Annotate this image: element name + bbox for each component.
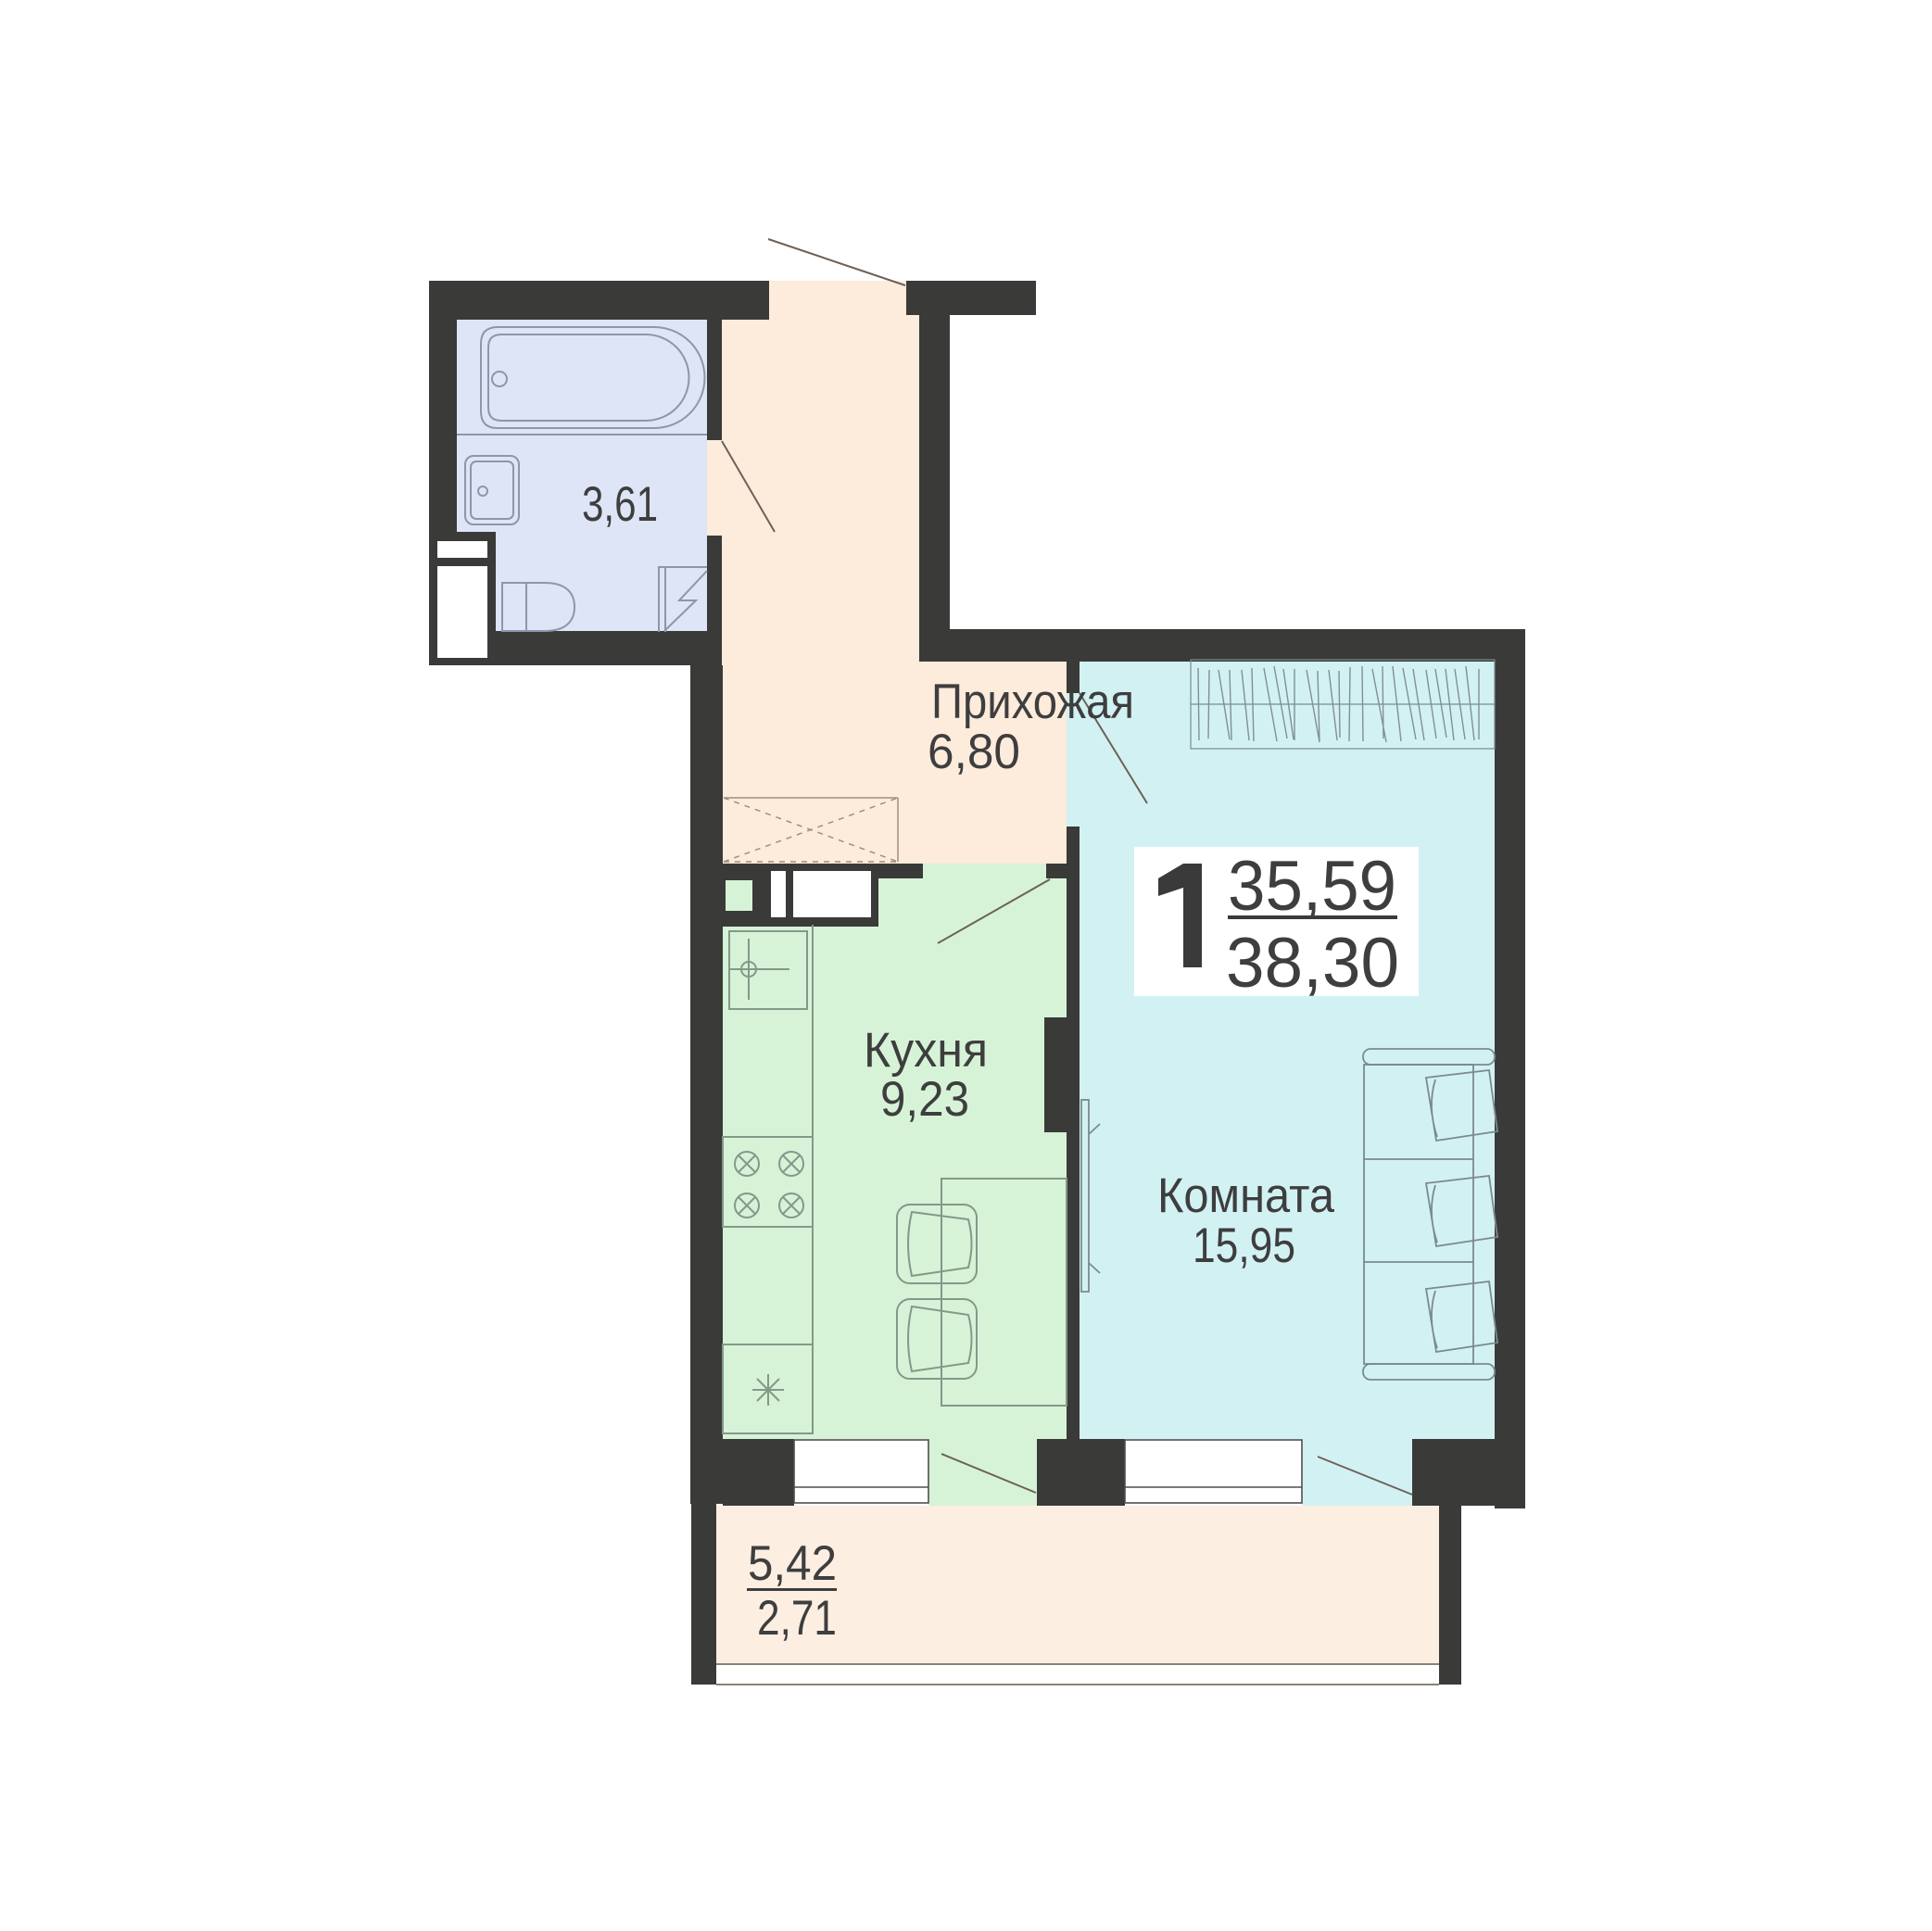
svg-text:38,30: 38,30 bbox=[1226, 924, 1399, 1003]
svg-text:6,80: 6,80 bbox=[928, 725, 1020, 779]
svg-text:3,61: 3,61 bbox=[582, 477, 658, 532]
svg-text:Кухня: Кухня bbox=[864, 1023, 988, 1078]
svg-text:2,71: 2,71 bbox=[757, 1591, 837, 1646]
svg-text:5,42: 5,42 bbox=[748, 1536, 837, 1591]
svg-text:9,23: 9,23 bbox=[880, 1072, 969, 1127]
svg-text:15,95: 15,95 bbox=[1193, 1218, 1295, 1273]
svg-text:Прихожая: Прихожая bbox=[931, 675, 1134, 729]
svg-text:35,59: 35,59 bbox=[1228, 847, 1396, 926]
svg-text:Комната: Комната bbox=[1157, 1168, 1334, 1223]
